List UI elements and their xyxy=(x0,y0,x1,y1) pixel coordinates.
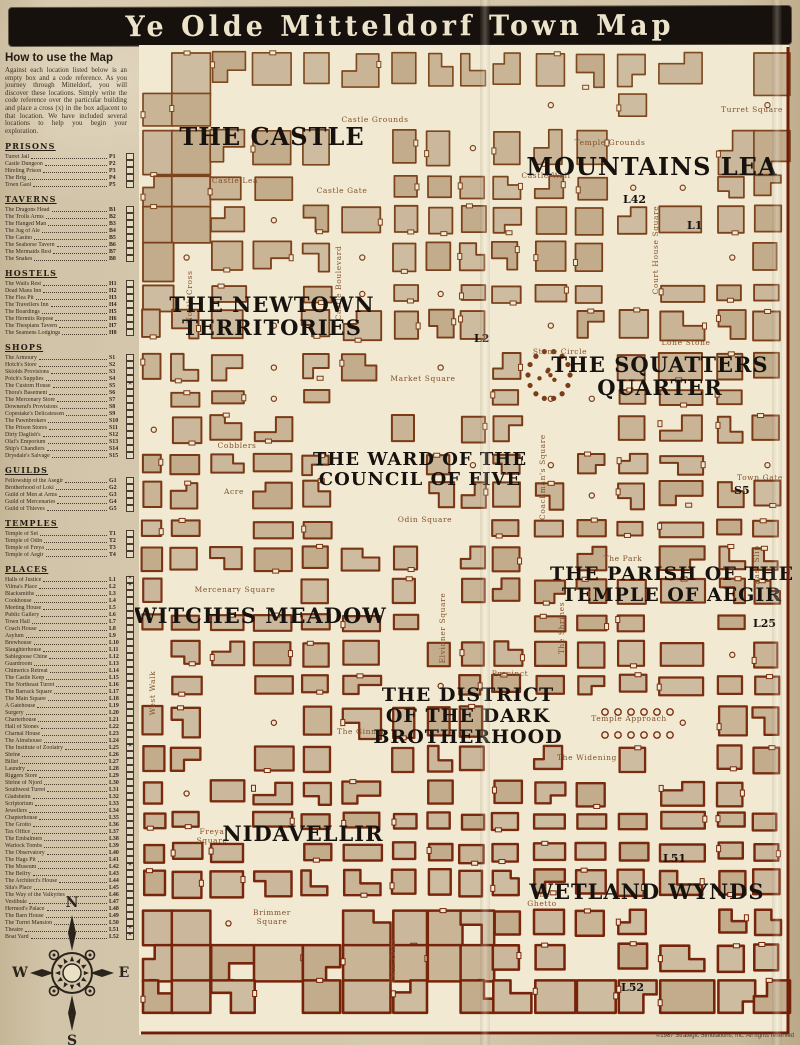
door-mark xyxy=(289,255,293,261)
legend-checkbox xyxy=(126,322,134,329)
door-mark xyxy=(616,489,620,495)
leader-dots xyxy=(43,651,107,652)
door-mark xyxy=(554,52,560,56)
page-title: Ye Olde Mitteldorf Town Map xyxy=(125,9,674,43)
legend-checkbox xyxy=(126,410,134,417)
door-mark xyxy=(624,533,630,537)
legend-entry-code: L44 xyxy=(109,878,122,884)
door-mark xyxy=(576,187,580,193)
legend-checkbox xyxy=(126,625,134,632)
street-label: Acre xyxy=(223,487,244,496)
building xyxy=(343,980,390,1012)
legend-entry-code: G2 xyxy=(109,485,122,491)
legend-entry-code: L45 xyxy=(109,885,122,891)
door-mark xyxy=(520,655,524,661)
door-mark xyxy=(630,942,636,946)
door-mark xyxy=(147,826,153,830)
building xyxy=(753,312,780,341)
building xyxy=(578,643,604,668)
legend-checkbox xyxy=(126,354,134,361)
leader-dots xyxy=(45,165,107,166)
building xyxy=(534,910,564,934)
legend-entry: Castle DungeonP2 xyxy=(5,160,134,167)
building xyxy=(303,643,328,666)
building xyxy=(754,53,790,95)
legend-entry: The Hags PitL41 xyxy=(5,856,134,863)
building xyxy=(143,93,174,126)
legend-entry-code: L34 xyxy=(109,808,122,814)
door-mark xyxy=(408,230,414,234)
door-mark xyxy=(491,885,495,891)
legend-checkbox xyxy=(126,821,134,828)
building xyxy=(254,642,291,665)
building xyxy=(754,285,779,301)
legend-entry-code: S9 xyxy=(109,411,122,417)
legend-checkbox xyxy=(126,870,134,877)
legend-checkbox xyxy=(126,544,134,551)
legend-entry-code: L7 xyxy=(109,619,122,625)
legend-entry-code: L10 xyxy=(109,640,122,646)
legend-entry: The Jug of AleB4 xyxy=(5,227,134,234)
building xyxy=(142,310,160,337)
leader-dots xyxy=(46,549,107,550)
legend-entry-name: The Northeast Turret xyxy=(5,682,54,688)
legend-entry-name: Castle Dungeon xyxy=(5,161,43,167)
legend-entry: The Mermaids RestB7 xyxy=(5,248,134,255)
legend-entry: Hotch's StoreS2 xyxy=(5,361,134,368)
building xyxy=(493,945,519,969)
legend-entry-code: H1 xyxy=(109,281,122,287)
door-mark xyxy=(658,523,662,529)
street-label: Twin Oaks xyxy=(388,938,397,983)
legend-entry-name: Hall of Stones xyxy=(5,724,39,730)
leader-dots xyxy=(42,232,107,233)
legend-entry-name: The Armoury xyxy=(5,355,37,361)
colonnade-dot xyxy=(654,732,660,738)
compass-letter-west: W xyxy=(12,965,28,981)
legend-entry-code: L39 xyxy=(109,843,122,849)
legend-entry-code: S7 xyxy=(109,397,122,403)
legend-entry-name: The Barrack Square xyxy=(5,689,52,695)
building xyxy=(462,206,486,232)
building xyxy=(718,946,744,972)
door-mark xyxy=(317,544,323,548)
building xyxy=(429,844,452,860)
legend-entry: Dead Mans InnH2 xyxy=(5,287,134,294)
leader-dots xyxy=(49,394,107,395)
door-mark xyxy=(760,519,766,523)
door-mark xyxy=(390,883,394,889)
building xyxy=(619,416,645,440)
legend-entry-name: Brotherhood of Loki xyxy=(5,485,54,491)
legend-section-heading: PRISONS xyxy=(5,141,134,151)
building xyxy=(255,177,292,200)
legend-entry: The Flea PitH3 xyxy=(5,294,134,301)
legend-checkbox xyxy=(126,329,134,336)
leader-dots xyxy=(43,285,107,286)
leader-dots xyxy=(57,401,107,402)
legend-checkbox xyxy=(126,779,134,786)
legend-checkbox xyxy=(126,424,134,431)
legend-entry: The AlmshouseL24 xyxy=(5,737,134,744)
legend-entry: The BrigP4 xyxy=(5,174,134,181)
leader-dots xyxy=(65,749,107,750)
legend-entry: Shrine of NjordL30 xyxy=(5,779,134,786)
street-label: Elvidner Square xyxy=(438,593,447,664)
building xyxy=(462,285,486,300)
legend-entry-code: B6 xyxy=(109,242,122,248)
door-mark xyxy=(518,183,522,189)
leader-dots xyxy=(39,588,107,589)
legend-entry-code: H2 xyxy=(109,288,122,294)
map-code-L1: L1 xyxy=(687,219,702,232)
door-mark xyxy=(518,558,522,564)
legend-entry-code: P2 xyxy=(109,161,122,167)
legend-entry: Temple of OdinT2 xyxy=(5,537,134,544)
door-mark xyxy=(264,769,270,773)
leader-dots xyxy=(43,172,107,173)
legend-entry: The Seahorse TavernB6 xyxy=(5,241,134,248)
leader-dots xyxy=(59,882,107,883)
legend-entry: The Institute of ZoolatryL25✕ xyxy=(5,744,134,751)
building xyxy=(143,354,161,379)
legend-checkbox xyxy=(126,368,134,375)
compass-spear xyxy=(68,915,76,951)
legend-entry-code: B3 xyxy=(109,221,122,227)
building xyxy=(173,872,202,898)
building xyxy=(393,842,415,859)
leader-dots xyxy=(20,763,107,764)
legend-checkbox xyxy=(126,287,134,294)
door-mark xyxy=(770,503,776,507)
legend-entry: The Travellers InnH4 xyxy=(5,301,134,308)
door-mark xyxy=(769,746,775,750)
legend-entry-code: G3 xyxy=(109,492,122,498)
title-banner: Ye Olde Mitteldorf Town Map xyxy=(9,6,791,46)
building xyxy=(172,945,211,981)
legend-checkbox xyxy=(126,234,134,241)
legend-section: TEMPLESTemple of SetT1Temple of OdinT2Te… xyxy=(5,518,134,558)
building xyxy=(620,675,647,692)
leader-dots xyxy=(48,225,107,226)
map-code-L52: L52 xyxy=(621,981,644,994)
building xyxy=(577,814,606,828)
leader-dots xyxy=(49,658,107,659)
door-mark xyxy=(253,990,257,996)
door-mark xyxy=(178,706,184,710)
door-mark xyxy=(491,392,495,398)
door-mark xyxy=(223,413,229,417)
legend-entry: Public GalleryL6 xyxy=(5,611,134,618)
door-mark xyxy=(210,655,214,661)
door-mark xyxy=(515,247,519,253)
legend-entry-name: Drysdale's Salvage xyxy=(5,453,50,459)
building xyxy=(462,642,484,665)
legend-entry-name: Cookhouse xyxy=(5,598,32,604)
legend-entry-code: L21 xyxy=(109,717,122,723)
leader-dots xyxy=(34,239,107,240)
legend-checkbox xyxy=(126,758,134,765)
door-mark xyxy=(270,51,276,55)
legend-checkbox xyxy=(126,294,134,301)
door-mark xyxy=(540,614,546,618)
legend-entry-code: L2 xyxy=(109,584,122,590)
legend-checkbox xyxy=(126,280,134,287)
compass-letter-east: E xyxy=(119,965,130,981)
legend-checkbox xyxy=(126,445,134,452)
door-mark xyxy=(415,184,419,190)
door-mark xyxy=(716,422,720,428)
building xyxy=(143,455,161,473)
building xyxy=(211,871,244,897)
building xyxy=(143,207,174,243)
door-mark xyxy=(542,841,548,845)
legend-entry-name: Brewhouse xyxy=(5,640,32,646)
legend-entry-name: Temple of Odin xyxy=(5,538,42,544)
legend-entry: GuardroomL13 xyxy=(5,660,134,667)
building xyxy=(304,53,329,84)
street-label: West Walk xyxy=(148,671,157,716)
legend-entry: The MuseumL42✕ xyxy=(5,863,134,870)
street-label: Precinct xyxy=(492,669,529,678)
door-mark xyxy=(686,503,692,507)
legend-entry-code: S12 xyxy=(109,432,122,438)
door-mark xyxy=(414,140,418,146)
building xyxy=(429,208,452,234)
legend-entry: Potch's SuppliesS4 xyxy=(5,375,134,382)
building xyxy=(755,844,779,861)
leader-dots xyxy=(44,542,107,543)
building xyxy=(428,176,451,197)
legend-entry: Riggers StoreL29 xyxy=(5,772,134,779)
legend-entry-name: The Flea Pit xyxy=(5,295,34,301)
building xyxy=(618,641,644,666)
legend-entry-code: S6 xyxy=(109,390,122,396)
door-mark xyxy=(542,943,548,947)
colonnade-dot xyxy=(628,732,634,738)
legend-entry-code: L26 xyxy=(109,752,122,758)
door-mark xyxy=(658,1000,662,1006)
door-mark xyxy=(302,526,306,532)
legend-entry-name: Laundry xyxy=(5,766,25,772)
legend-entry: Downend's ProvisionsS8 xyxy=(5,403,134,410)
legend-entry-code: T1 xyxy=(109,531,122,537)
legend-checkbox xyxy=(126,877,134,884)
street-label: Turret Square xyxy=(721,105,783,114)
leader-dots xyxy=(38,861,107,862)
legend-sidebar: How to use the Map Against each location… xyxy=(5,52,134,940)
legend-entry-code: S11 xyxy=(109,425,122,431)
legend-entry: Guild of Men at ArmsG3 xyxy=(5,491,134,498)
legend-entry: The BoardingsH5 xyxy=(5,308,134,315)
legend-checkbox xyxy=(126,814,134,821)
building xyxy=(493,844,518,862)
leader-dots xyxy=(48,700,107,701)
building xyxy=(428,781,453,804)
street-label: Brimmer xyxy=(253,908,291,917)
legend-entry: SurgeryL20 xyxy=(5,709,134,716)
legend-entry: Turret JailP1 xyxy=(5,153,134,160)
map-code-L2: L2 xyxy=(474,332,489,345)
legend-entry-code: L8 xyxy=(109,626,122,632)
building xyxy=(576,843,606,860)
legend-checkbox xyxy=(126,751,134,758)
legend-entry-code: S3 xyxy=(109,369,122,375)
door-mark xyxy=(634,308,640,312)
door-mark xyxy=(759,942,765,946)
leader-dots xyxy=(39,630,107,631)
legend-entry: Hall of StonesL22 xyxy=(5,723,134,730)
leader-dots xyxy=(48,422,107,423)
legend-entry: Vilma's PlaceL2✕ xyxy=(5,583,134,590)
legend-entry-name: Dead Mans Inn xyxy=(5,288,41,294)
legend-entry-name: Potch's Supplies xyxy=(5,376,44,382)
legend-entry-name: Charterhouse xyxy=(5,717,36,723)
building xyxy=(719,843,743,859)
legend-entry: Town HallL7 xyxy=(5,618,134,625)
legend-checkbox xyxy=(126,667,134,674)
legend-checkbox xyxy=(126,174,134,181)
street-label: The Shrines xyxy=(557,602,566,654)
legend-entry: Meeting HouseL5 xyxy=(5,604,134,611)
stone-circle-dot xyxy=(552,378,556,382)
door-mark xyxy=(416,323,420,329)
door-mark xyxy=(495,828,501,832)
legend-entry: Town GaolP5 xyxy=(5,181,134,188)
legend-entry-code: G4 xyxy=(109,499,122,505)
building xyxy=(172,980,211,1012)
legend-entry-code: L27 xyxy=(109,759,122,765)
building xyxy=(755,677,779,695)
legend-entry-name: The Institute of Zoolatry xyxy=(5,745,63,751)
legend-entry: Ship's ChandlersS14 xyxy=(5,445,134,452)
building xyxy=(537,207,567,234)
legend-entry-code: H5 xyxy=(109,309,122,315)
legend-entry-name: Guild of Mercenaries xyxy=(5,499,55,505)
legend-entry: Thora's BasementS6 xyxy=(5,389,134,396)
legend-entry-name: Sablegoose Chine xyxy=(5,654,47,660)
map-code-L25: L25 xyxy=(753,617,776,630)
door-mark xyxy=(765,309,771,313)
district-label-newtown-territories: THE NEWTOWN xyxy=(169,292,374,317)
street-label: Temple Approach xyxy=(591,714,667,723)
door-mark xyxy=(584,909,590,913)
legend-entry-name: The Hags Pit xyxy=(5,857,36,863)
street-label: The Park xyxy=(604,554,643,563)
building xyxy=(255,548,292,571)
legend-entry-name: The Mermaids Rest xyxy=(5,249,51,255)
legend-entry-code: S5 xyxy=(109,383,122,389)
door-mark xyxy=(317,978,323,982)
door-mark xyxy=(184,391,190,395)
legend-entry-code: S15 xyxy=(109,453,122,459)
legend-entry-name: The Hermits Repose xyxy=(5,316,53,322)
door-mark xyxy=(496,534,502,538)
door-mark xyxy=(659,785,663,791)
door-mark xyxy=(533,988,537,994)
leader-dots xyxy=(34,644,107,645)
building xyxy=(304,522,332,538)
building xyxy=(718,745,742,768)
door-mark xyxy=(458,253,462,259)
colonnade-dot xyxy=(667,709,673,715)
legend-checkbox xyxy=(126,639,134,646)
building xyxy=(576,208,603,235)
building xyxy=(173,843,202,859)
legend-entry: The Castle KeepL15 xyxy=(5,674,134,681)
legend-entry: JewellersL34 xyxy=(5,807,134,814)
door-mark xyxy=(730,767,736,771)
legend-entry-name: Tax Office xyxy=(5,829,30,835)
legend-entry-name: The Belfry xyxy=(5,871,31,877)
door-mark xyxy=(506,231,512,235)
legend-entry: The Hanged ManB3 xyxy=(5,220,134,227)
building xyxy=(428,911,463,946)
legend-entry-code: L14 xyxy=(109,668,122,674)
legend-entry-code: H8 xyxy=(109,330,122,336)
legend-checkbox xyxy=(126,807,134,814)
legend-checkbox xyxy=(126,403,134,410)
legend-checkbox xyxy=(126,181,134,188)
leader-dots xyxy=(65,482,107,483)
leader-dots xyxy=(39,777,107,778)
door-mark xyxy=(492,148,496,154)
building xyxy=(255,747,294,771)
legend-entry-name: The Hanged Man xyxy=(5,221,46,227)
legend-entry-name: The Main Square xyxy=(5,696,46,702)
door-mark xyxy=(681,403,687,407)
leader-dots xyxy=(47,510,107,511)
door-mark xyxy=(561,182,565,188)
legend-entry-code: H7 xyxy=(109,323,122,329)
legend-entry-name: Guild of Thieves xyxy=(5,506,45,512)
building xyxy=(392,415,414,441)
leader-dots xyxy=(46,556,107,557)
legend-checkbox xyxy=(126,301,134,308)
legend-entry: The Custom HouseS5✕ xyxy=(5,382,134,389)
door-mark xyxy=(573,259,577,265)
building xyxy=(304,390,329,402)
building xyxy=(172,53,211,95)
district-label-newtown-territories: TERRITORIES xyxy=(182,315,362,340)
legend-checkbox xyxy=(126,477,134,484)
stone-circle-dot xyxy=(533,391,538,396)
legend-section-heading: HOSTELS xyxy=(5,268,134,278)
door-mark xyxy=(211,62,215,68)
stone-circle-dot xyxy=(559,391,564,396)
leader-dots xyxy=(43,581,107,582)
legend-entry-name: The Boardings xyxy=(5,309,40,315)
scanned-town-map-page: Ye Olde Mitteldorf Town Map How to use t… xyxy=(0,0,800,1045)
leader-dots xyxy=(26,714,107,715)
leader-dots xyxy=(55,320,107,321)
building xyxy=(718,206,744,233)
legend-entry-code: S10 xyxy=(109,418,122,424)
building xyxy=(661,812,705,829)
legend-entry-name: Chimerics Retreat xyxy=(5,668,48,674)
door-mark xyxy=(265,439,271,443)
legend-entry-name: The Castle Keep xyxy=(5,675,44,681)
leader-dots xyxy=(43,436,107,437)
door-mark xyxy=(392,819,396,825)
door-mark xyxy=(740,790,744,796)
legend-entry: The Northeast TurretL16 xyxy=(5,681,134,688)
legend-checkbox xyxy=(126,590,134,597)
door-mark xyxy=(767,675,773,679)
legend-entry-name: Thora's Basement xyxy=(5,390,47,396)
legend-entry-name: The Architect's House xyxy=(5,878,57,884)
legend-entry: Brotherhood of LokiG2 xyxy=(5,484,134,491)
